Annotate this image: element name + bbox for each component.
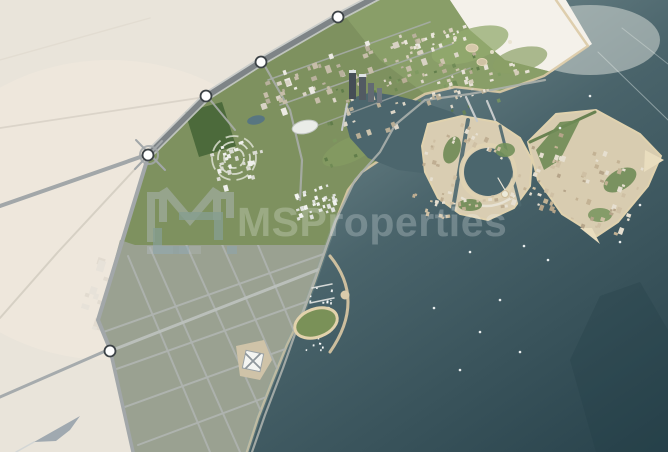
tower bbox=[377, 88, 382, 103]
lagoon-pavilion-islet bbox=[502, 191, 509, 198]
tower bbox=[349, 72, 356, 99]
interchange-marker bbox=[256, 57, 267, 68]
sand-islet bbox=[341, 291, 350, 300]
interchange-marker bbox=[333, 12, 344, 23]
offshore-islet bbox=[466, 44, 478, 52]
tower-cap bbox=[349, 70, 356, 73]
tower bbox=[368, 83, 374, 102]
masterplan-svg: MSProperties bbox=[0, 0, 668, 452]
tower bbox=[359, 76, 366, 100]
interchange-marker bbox=[201, 91, 212, 102]
masterplan-render: MSProperties bbox=[0, 0, 668, 452]
interchange-marker bbox=[143, 150, 154, 161]
tower-cap bbox=[359, 74, 366, 77]
watermark-text: MSProperties bbox=[237, 199, 507, 245]
interchange-marker bbox=[105, 346, 116, 357]
offshore-islet bbox=[477, 59, 487, 66]
